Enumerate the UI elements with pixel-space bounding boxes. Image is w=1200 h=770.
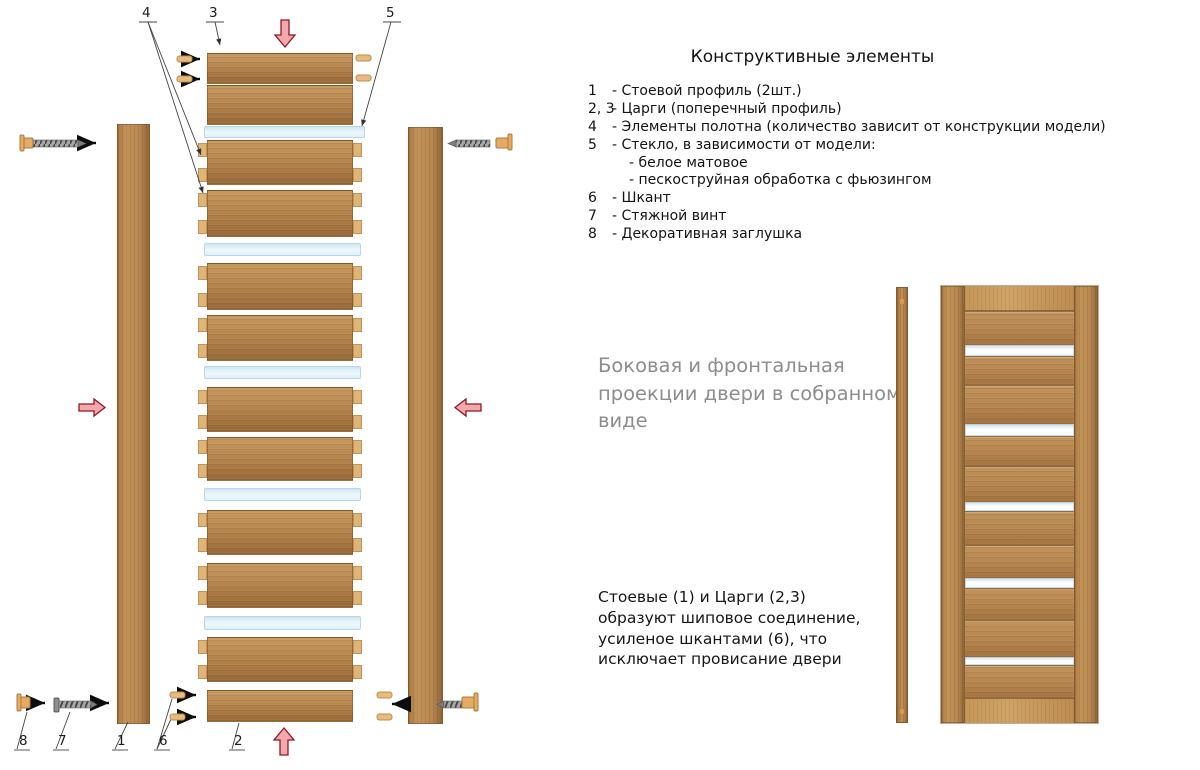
dowel bbox=[170, 692, 185, 698]
door-stile-left bbox=[941, 286, 965, 723]
tenon bbox=[353, 665, 362, 679]
dowel bbox=[377, 692, 392, 698]
assembled-view-caption: Боковая и фронтальная проекции двери в с… bbox=[598, 352, 901, 435]
joint-note: Стоевые (1) и Царги (2,3) образуют шипов… bbox=[598, 587, 860, 670]
stile-profile-left bbox=[117, 124, 150, 724]
door-panel bbox=[965, 545, 1074, 578]
legend-item: 2, 3- Царги (поперечный профиль) bbox=[588, 101, 1200, 119]
tenon bbox=[198, 415, 207, 429]
callout-7: 7 bbox=[58, 733, 67, 749]
tenon bbox=[353, 566, 362, 580]
tenon bbox=[353, 266, 362, 280]
panel-plank bbox=[207, 263, 353, 310]
door-assembly-drawing: 4 3 5 8 7 1 6 2 Конструктивные элементы … bbox=[0, 0, 1200, 770]
tenon bbox=[353, 143, 362, 157]
glass-strip bbox=[204, 616, 361, 630]
cap-bottom-left bbox=[17, 694, 30, 711]
tenon bbox=[198, 640, 207, 654]
tenon bbox=[353, 220, 362, 234]
door-glass bbox=[965, 424, 1074, 436]
legend-subitem: - белое матовое bbox=[588, 155, 1200, 173]
door-glass bbox=[965, 502, 1074, 511]
door-panel bbox=[965, 620, 1074, 657]
legend-item: 8- Декоративная заглушка bbox=[588, 226, 1200, 244]
dowel bbox=[356, 75, 371, 81]
dowel-mark bbox=[900, 299, 904, 304]
screw-bottom-right bbox=[437, 693, 478, 711]
callout-6: 6 bbox=[159, 733, 168, 749]
legend-item: 4- Элементы полотна (количество зависит … bbox=[588, 119, 1200, 137]
tenon bbox=[353, 591, 362, 605]
tenon bbox=[353, 415, 362, 429]
door-side-projection bbox=[896, 287, 908, 723]
tenon bbox=[353, 318, 362, 332]
stile-profile-right bbox=[408, 127, 443, 724]
tenon bbox=[198, 220, 207, 234]
tenon bbox=[198, 344, 207, 358]
glass-strip bbox=[204, 243, 361, 256]
door-panel bbox=[965, 511, 1074, 545]
tenon bbox=[353, 293, 362, 307]
door-panel bbox=[965, 356, 1074, 385]
tenon bbox=[198, 538, 207, 552]
door-glass bbox=[965, 657, 1074, 665]
door-panel bbox=[965, 466, 1074, 502]
tenon bbox=[353, 640, 362, 654]
door-panel bbox=[965, 588, 1074, 620]
panel-plank bbox=[207, 190, 353, 237]
dowel bbox=[177, 76, 192, 82]
tenon bbox=[353, 168, 362, 182]
tenon bbox=[198, 665, 207, 679]
door-panel bbox=[965, 385, 1074, 424]
dowel-mark bbox=[900, 709, 904, 714]
tenon bbox=[198, 193, 207, 207]
tenon bbox=[198, 513, 207, 527]
arrow-left-icon bbox=[455, 399, 481, 416]
tenon bbox=[353, 538, 362, 552]
door-panel bbox=[965, 311, 1074, 345]
tenon bbox=[198, 390, 207, 404]
door-glass bbox=[965, 578, 1074, 588]
crossbar-top bbox=[207, 53, 353, 84]
tenon bbox=[353, 390, 362, 404]
callout-4: 4 bbox=[142, 5, 151, 21]
panel-plank bbox=[207, 637, 353, 682]
tenon bbox=[353, 193, 362, 207]
tenon bbox=[198, 143, 207, 157]
legend-subitem: - пескоструйная обработка с фьюзингом bbox=[588, 172, 1200, 190]
glass-strip bbox=[204, 366, 361, 379]
screw-bottom-left bbox=[54, 698, 97, 712]
glass-strip bbox=[204, 126, 365, 138]
panel-plank bbox=[207, 437, 353, 481]
legend-item: 6- Шкант bbox=[588, 190, 1200, 208]
tenon bbox=[198, 293, 207, 307]
tenon bbox=[198, 591, 207, 605]
tenon bbox=[198, 318, 207, 332]
door-front-projection bbox=[941, 286, 1098, 723]
dowel bbox=[170, 714, 185, 720]
screw-top-right bbox=[448, 134, 512, 150]
callout-1: 1 bbox=[117, 733, 126, 749]
tenon bbox=[353, 440, 362, 454]
arrow-right-icon bbox=[79, 399, 105, 416]
door-panel bbox=[965, 436, 1074, 466]
callout-5: 5 bbox=[386, 5, 395, 21]
tenon bbox=[198, 168, 207, 182]
callout-3: 3 bbox=[209, 5, 218, 21]
panel-plank bbox=[207, 315, 353, 361]
tenon bbox=[198, 266, 207, 280]
crossbar-bottom bbox=[207, 690, 353, 722]
screw-top-left bbox=[20, 135, 86, 151]
legend-item: 1- Стоевой профиль (2шт.) bbox=[588, 83, 1200, 101]
arrow-up-icon bbox=[274, 728, 294, 755]
legend-item: 7- Стяжной винт bbox=[588, 208, 1200, 226]
tenon bbox=[198, 440, 207, 454]
glass-strip bbox=[204, 488, 361, 501]
door-glass bbox=[965, 345, 1074, 356]
callout-8: 8 bbox=[19, 733, 28, 749]
tenon bbox=[198, 566, 207, 580]
panel-plank bbox=[207, 387, 353, 432]
tenon bbox=[198, 464, 207, 478]
door-rail-bottom bbox=[965, 698, 1074, 723]
door-panel bbox=[965, 665, 1074, 698]
dowel bbox=[377, 714, 392, 720]
panel-plank bbox=[207, 85, 353, 125]
dowel bbox=[356, 55, 371, 61]
tenon bbox=[353, 513, 362, 527]
dowel bbox=[177, 56, 192, 62]
door-rail-top bbox=[965, 286, 1074, 311]
legend-list: 1- Стоевой профиль (2шт.) 2, 3- Царги (п… bbox=[588, 83, 1200, 244]
callout-2: 2 bbox=[234, 733, 243, 749]
panel-plank bbox=[207, 510, 353, 555]
panel-plank bbox=[207, 140, 353, 185]
tenon bbox=[353, 464, 362, 478]
arrow-down-icon bbox=[275, 20, 295, 47]
tenon bbox=[353, 344, 362, 358]
legend-title: Конструктивные элементы bbox=[640, 47, 985, 67]
panel-plank bbox=[207, 563, 353, 608]
door-stile-right bbox=[1074, 286, 1098, 723]
legend-item: 5- Стекло, в зависимости от модели: bbox=[588, 137, 1200, 155]
